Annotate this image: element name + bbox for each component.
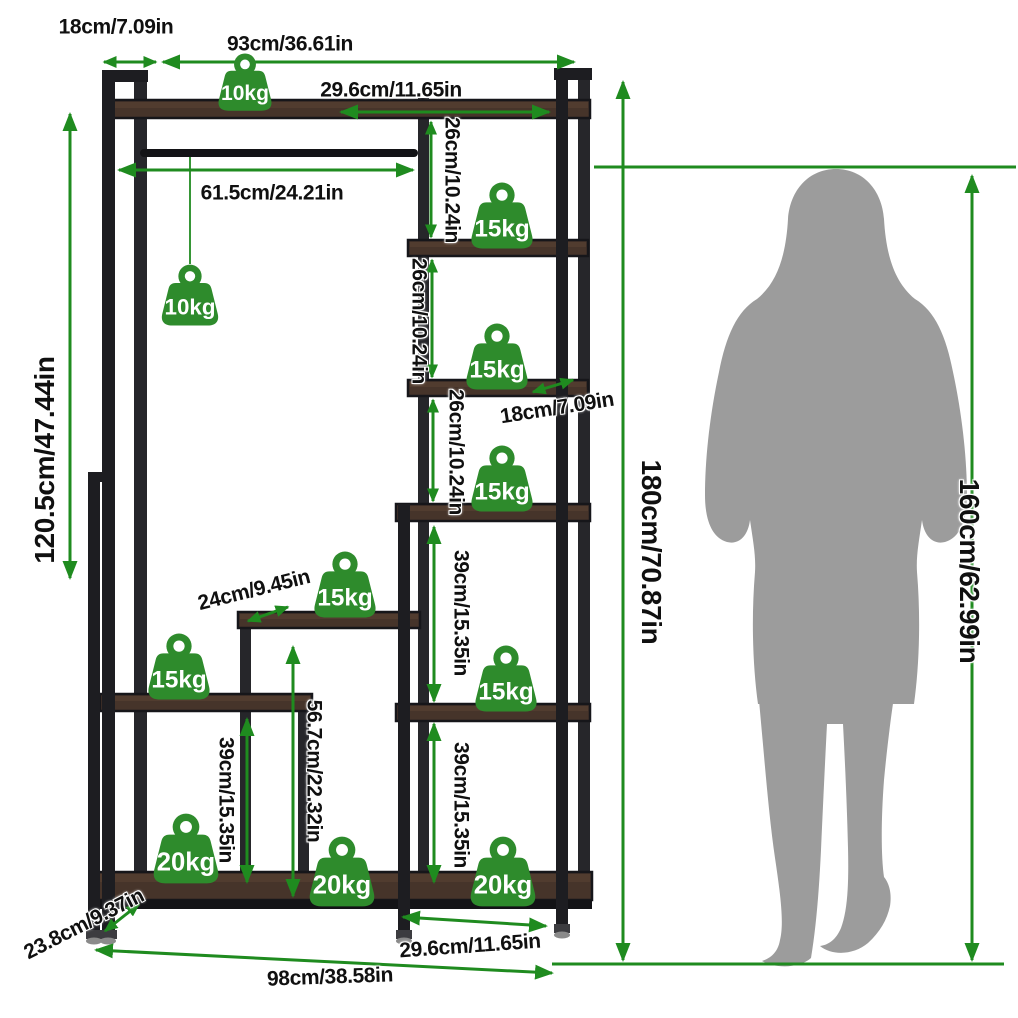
dimension-label-left-lower-height: 39cm/15.35in — [216, 737, 237, 863]
dimension-label-cubby-height-3: 26cm/10.24in — [446, 389, 467, 515]
dimension-label-base-depth: 23.8cm/9.37in — [21, 885, 148, 963]
dimension-label-rod-width: 61.5cm/24.21in — [201, 183, 344, 204]
dimension-label-top-width: 93cm/36.61in — [227, 34, 353, 55]
dimension-label-right-lower-height: 39cm/15.35in — [451, 742, 472, 868]
dimension-label-small-shelf-width: 24cm/9.45in — [196, 566, 312, 614]
dimension-label-base-shelf-width: 29.6cm/11.65in — [399, 931, 542, 962]
dimension-diagram: 10kg10kg15kg15kg15kg15kg15kg15kg20kg20kg… — [0, 0, 1018, 1018]
dimension-label-top-depth: 18cm/7.09in — [59, 17, 174, 38]
dimension-label-shelf-depth: 18cm/7.09in — [499, 389, 616, 428]
dimension-label-total-width: 98cm/38.58in — [267, 964, 394, 989]
dimension-label-left-section-height: 120.5cm/47.44in — [31, 356, 59, 563]
dimension-label-top-shelf-width: 29.6cm/11.65in — [320, 80, 462, 101]
dimension-label-mid-column-height: 56.7cm/22.32in — [304, 700, 325, 843]
label-layer: 18cm/7.09in93cm/36.61in29.6cm/11.65in61.… — [0, 0, 1018, 1018]
dimension-label-right-upper-height: 39cm/15.35in — [451, 550, 472, 676]
dimension-label-total-height: 180cm/70.87in — [637, 460, 665, 645]
dimension-label-cubby-height-1: 26cm/10.24in — [442, 117, 463, 243]
dimension-label-cubby-height-2: 26cm/10.24in — [409, 258, 430, 384]
dimension-label-person-height: 160cm/62.99in — [955, 479, 983, 664]
